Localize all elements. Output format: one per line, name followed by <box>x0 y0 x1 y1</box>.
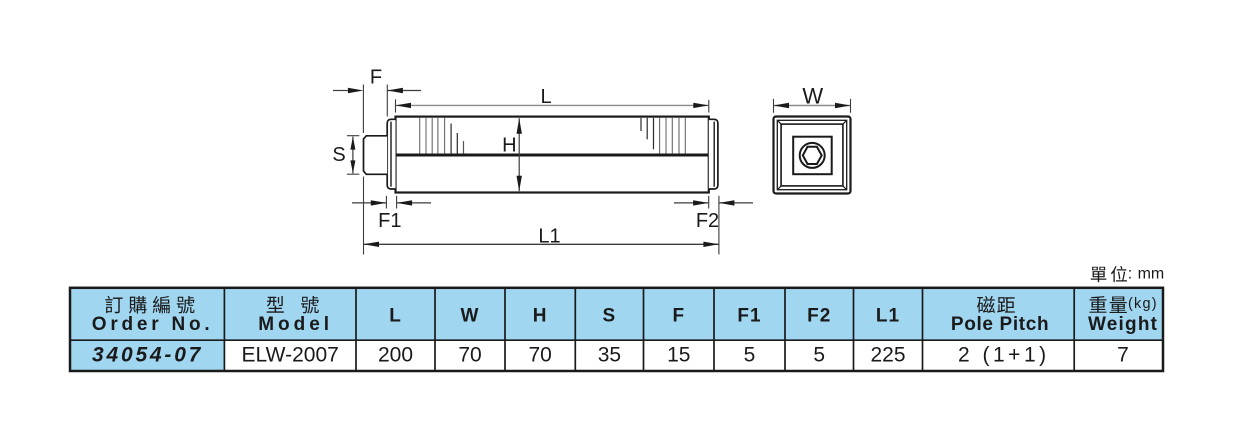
svg-text:W: W <box>802 84 823 109</box>
svg-text:L1: L1 <box>876 305 900 326</box>
svg-text:F: F <box>370 67 382 89</box>
svg-text:(kg): (kg) <box>1128 296 1158 312</box>
svg-text:mm: mm <box>1138 266 1165 283</box>
svg-text:Weight: Weight <box>1088 314 1158 335</box>
svg-text:S: S <box>603 305 617 326</box>
svg-text:35: 35 <box>598 344 621 367</box>
svg-text:W: W <box>461 305 480 326</box>
svg-text:L: L <box>389 305 402 326</box>
svg-text:F1: F1 <box>378 210 401 232</box>
svg-text:70: 70 <box>528 344 551 367</box>
svg-text::: : <box>1128 266 1132 283</box>
svg-text:2 (1+1): 2 (1+1) <box>958 344 1050 367</box>
svg-text:70: 70 <box>458 344 481 367</box>
svg-text:34054-07: 34054-07 <box>92 344 203 367</box>
svg-text:Pole Pitch: Pole Pitch <box>951 314 1049 335</box>
svg-text:F2: F2 <box>696 210 719 232</box>
svg-text:H: H <box>502 135 516 157</box>
svg-text:225: 225 <box>870 344 905 367</box>
svg-text:F: F <box>672 305 685 326</box>
svg-text:F1: F1 <box>737 305 761 326</box>
svg-text:L1: L1 <box>538 226 560 248</box>
svg-text:5: 5 <box>744 344 756 367</box>
svg-text:H: H <box>533 305 548 326</box>
svg-text:Order No.: Order No. <box>92 314 214 335</box>
svg-text:ELW-2007: ELW-2007 <box>242 344 339 367</box>
svg-text:5: 5 <box>813 344 825 367</box>
svg-text:7: 7 <box>1117 344 1129 367</box>
svg-text:200: 200 <box>378 344 413 367</box>
svg-text:L: L <box>540 86 551 108</box>
svg-text:Model: Model <box>258 314 333 335</box>
svg-text:15: 15 <box>667 344 690 367</box>
svg-text:F2: F2 <box>807 305 831 326</box>
svg-text:S: S <box>332 144 345 166</box>
